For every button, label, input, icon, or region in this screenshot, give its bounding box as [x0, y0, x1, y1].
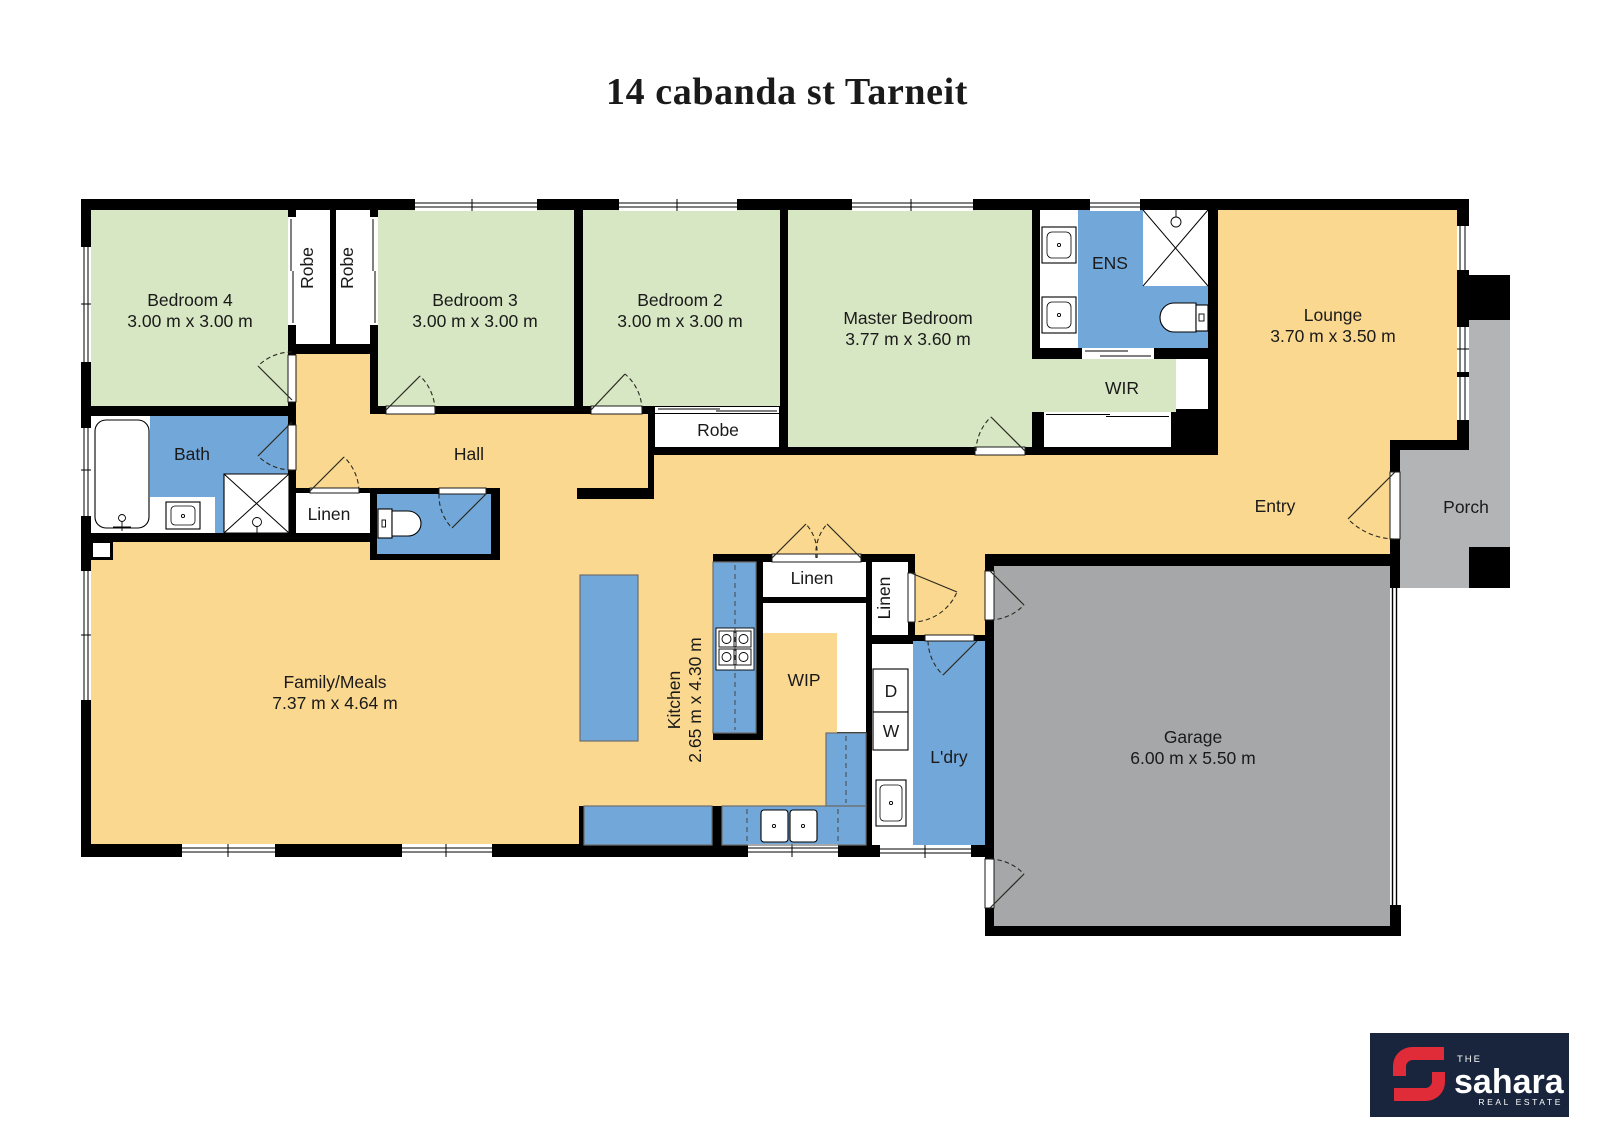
svg-text:Linen: Linen — [308, 504, 351, 524]
svg-text:Porch: Porch — [1443, 497, 1489, 517]
svg-text:sahara: sahara — [1454, 1063, 1565, 1101]
svg-text:Robe: Robe — [337, 247, 357, 289]
svg-text:REAL ESTATE: REAL ESTATE — [1478, 1097, 1563, 1107]
svg-text:W: W — [883, 721, 900, 741]
svg-text:Bedroom 3: Bedroom 3 — [432, 290, 518, 310]
svg-text:Family/Meals: Family/Meals — [283, 672, 386, 692]
svg-text:ENS: ENS — [1092, 253, 1128, 273]
svg-text:Linen: Linen — [791, 568, 834, 588]
svg-text:3.77 m x 3.60 m: 3.77 m x 3.60 m — [845, 329, 970, 349]
svg-text:Kitchen: Kitchen — [664, 671, 684, 729]
svg-text:Bedroom 2: Bedroom 2 — [637, 290, 723, 310]
svg-text:Robe: Robe — [297, 247, 317, 289]
svg-text:14 cabanda st Tarneit: 14 cabanda st Tarneit — [606, 71, 968, 113]
svg-text:Entry: Entry — [1255, 496, 1296, 516]
svg-text:3.00 m x 3.00 m: 3.00 m x 3.00 m — [412, 311, 537, 331]
svg-text:WIP: WIP — [787, 670, 820, 690]
svg-text:D: D — [885, 681, 898, 701]
svg-text:2.65 m x 4.30 m: 2.65 m x 4.30 m — [685, 637, 705, 762]
svg-text:3.70 m x 3.50 m: 3.70 m x 3.50 m — [1270, 326, 1395, 346]
svg-text:3.00 m x 3.00 m: 3.00 m x 3.00 m — [127, 311, 252, 331]
svg-text:WIR: WIR — [1105, 378, 1139, 398]
svg-text:Bedroom 4: Bedroom 4 — [147, 290, 233, 310]
svg-text:7.37 m x 4.64 m: 7.37 m x 4.64 m — [272, 693, 397, 713]
svg-text:Master Bedroom: Master Bedroom — [843, 308, 972, 328]
svg-text:L'dry: L'dry — [930, 747, 968, 767]
svg-text:Bath: Bath — [174, 444, 210, 464]
svg-text:3.00 m x 3.00 m: 3.00 m x 3.00 m — [617, 311, 742, 331]
svg-text:Linen: Linen — [874, 577, 894, 620]
svg-text:Robe: Robe — [697, 420, 739, 440]
svg-text:Lounge: Lounge — [1304, 305, 1362, 325]
svg-text:Garage: Garage — [1164, 727, 1222, 747]
svg-text:Hall: Hall — [454, 444, 484, 464]
svg-text:6.00 m x 5.50 m: 6.00 m x 5.50 m — [1130, 748, 1255, 768]
